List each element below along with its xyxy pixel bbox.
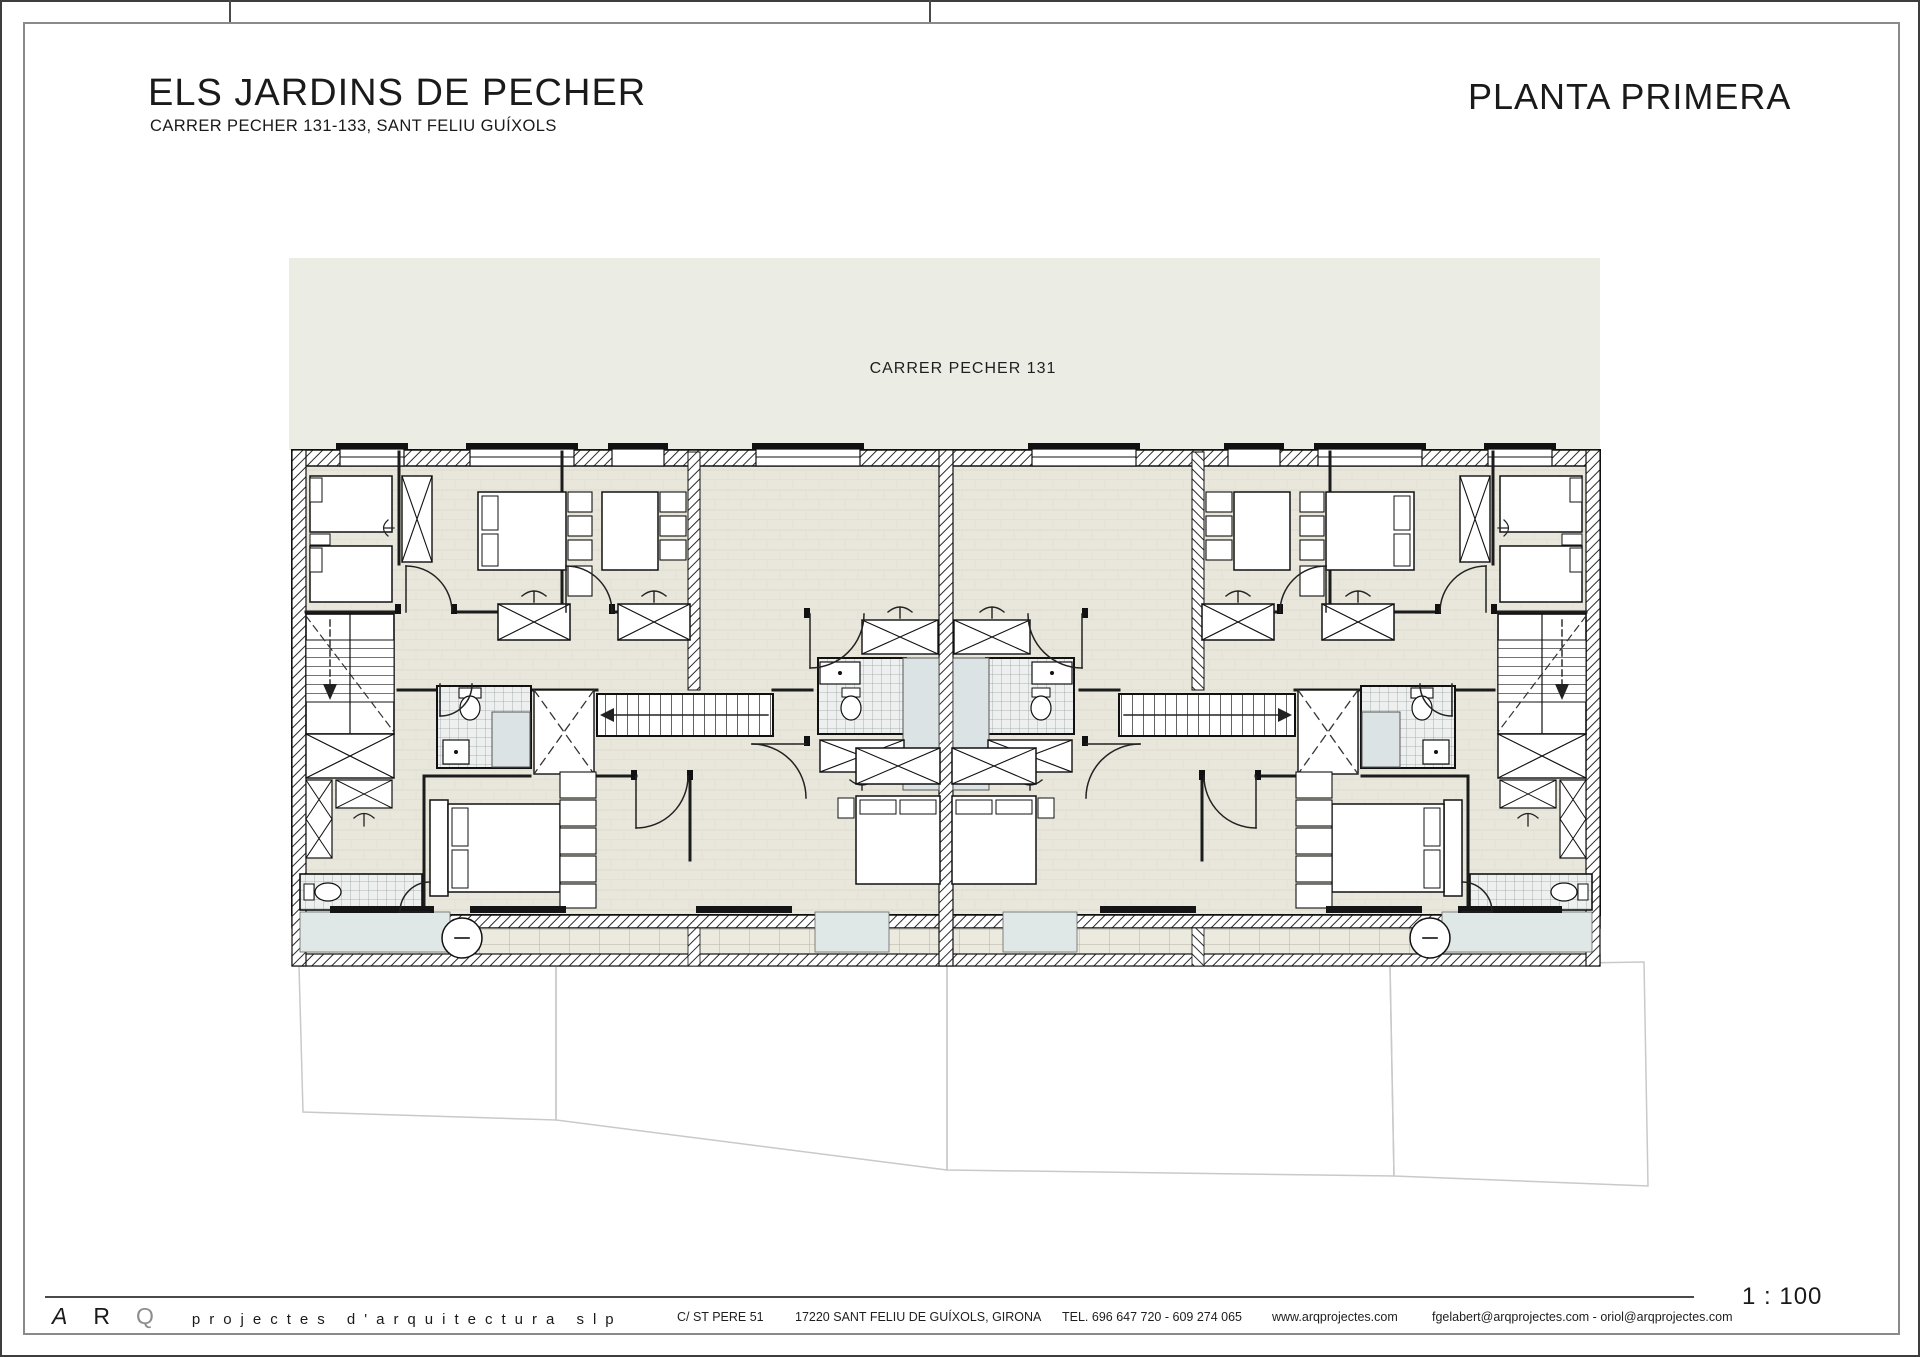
logo-slogan: projectes d'arquitectura slp bbox=[192, 1311, 623, 1328]
studio-logo: A R Q projectes d'arquitectura slp bbox=[52, 1303, 623, 1330]
building bbox=[292, 443, 1600, 966]
logo-letter-a: A bbox=[52, 1303, 67, 1330]
sheet: ELS JARDINS DE PECHER CARRER PECHER 131-… bbox=[0, 0, 1920, 1357]
garden-plots bbox=[299, 962, 1648, 1186]
footer-phone: TEL. 696 647 720 - 609 274 065 bbox=[1062, 1310, 1242, 1324]
street-label: CARRER PECHER 131 bbox=[870, 360, 1057, 377]
central-party-wall bbox=[939, 450, 953, 966]
logo-letter-q: Q bbox=[136, 1303, 154, 1330]
logo-letter-r: R bbox=[93, 1303, 110, 1330]
footer-website: www.arqprojectes.com bbox=[1272, 1310, 1398, 1324]
street-area bbox=[289, 258, 1600, 450]
footer-separator bbox=[45, 1296, 1694, 1298]
floor-plan-svg: CARRER PECHER 131 bbox=[0, 0, 1920, 1357]
footer-address: C/ ST PERE 51 bbox=[677, 1310, 764, 1324]
footer-emails: fgelabert@arqprojectes.com - oriol@arqpr… bbox=[1432, 1310, 1733, 1324]
footer-city: 17220 SANT FELIU DE GUÍXOLS, GIRONA bbox=[795, 1310, 1041, 1324]
scale-label: 1 : 100 bbox=[1742, 1283, 1822, 1311]
